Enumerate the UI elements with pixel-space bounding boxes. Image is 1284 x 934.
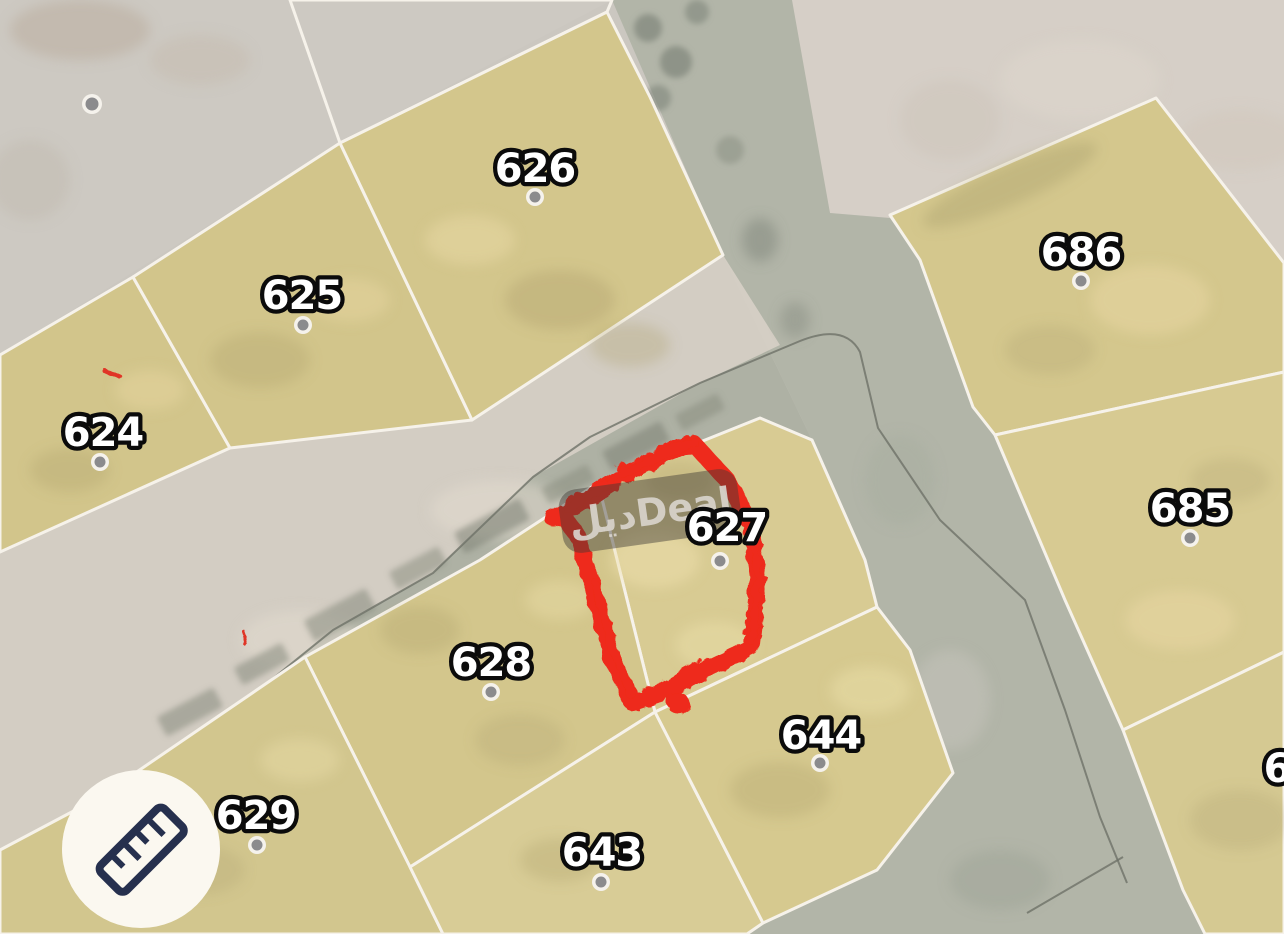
parcel-centroid-dot-core [596,877,607,888]
parcel-number-text: 685 [1150,486,1231,532]
parcel-centroid-dot-core [486,687,497,698]
parcel-label-6: 6 [1264,746,1284,792]
map-view: ديلDeal 6246256266276286296436446856866 [0,0,1284,934]
parcel-number-text: 626 [495,146,576,192]
parcel-centroid-dot-core [86,98,99,111]
parcel-centroid-dot-core [252,840,263,851]
parcel-number-text: 643 [562,830,643,876]
measure-button[interactable] [62,770,220,928]
parcel-centroid-dot-core [815,758,826,769]
parcel-centroid-dot-core [298,320,309,331]
parcel-number-text: 625 [262,273,343,319]
parcel-centroid-dot-core [530,192,541,203]
parcel-centroid-dot-core [715,556,726,567]
parcel-number-text: 627 [687,505,768,551]
parcel-centroid-dot-core [1076,276,1087,287]
parcel-number-text: 628 [451,640,532,686]
parcel-centroid-dot-core [1185,533,1196,544]
unlabeled-marker [82,94,102,114]
parcel-number-text: 6 [1264,746,1284,792]
parcel-number-text: 624 [63,410,144,456]
parcel-number-text: 686 [1041,230,1122,276]
map-canvas[interactable]: ديلDeal 6246256266276286296436446856866 [0,0,1284,934]
parcel-number-text: 644 [781,713,862,759]
parcel-number-text: 629 [216,793,297,839]
parcel-centroid-dot-core [95,457,106,468]
